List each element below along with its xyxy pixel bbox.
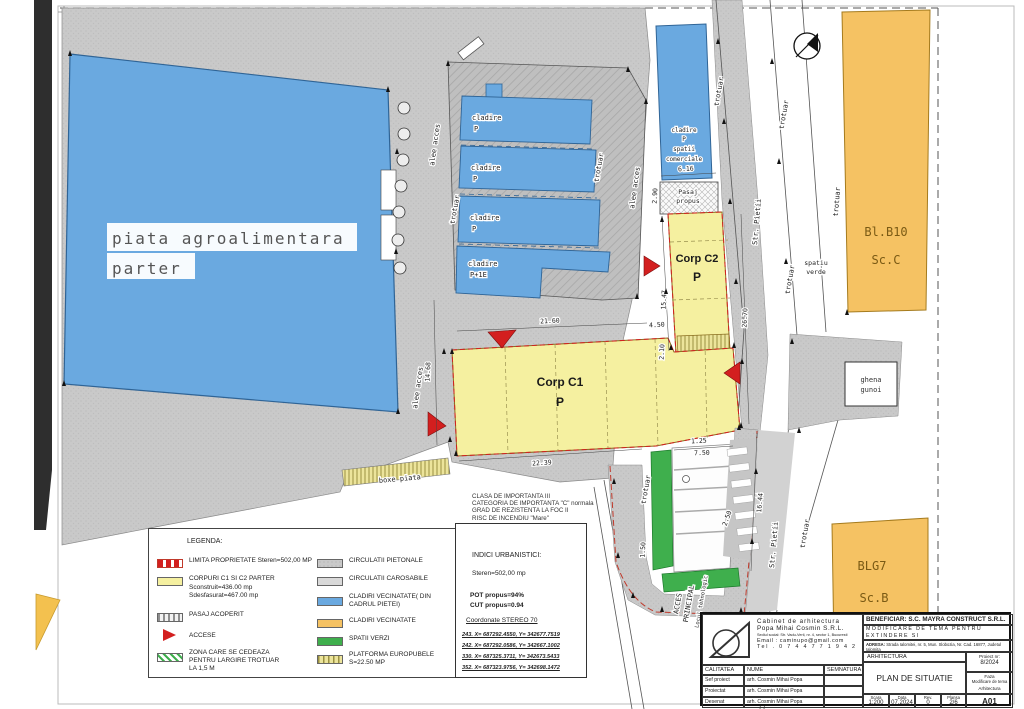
spatiu-verde-1: spatiu: [804, 259, 828, 267]
cluster-2-level: P: [473, 175, 477, 183]
specialty: ARHITECTURA: [863, 652, 966, 662]
dim-1-50: 1.50: [639, 542, 648, 558]
north-arrow-icon: [794, 33, 820, 59]
dim-6-16: 6.16: [678, 165, 694, 174]
cluster-3-level: P: [472, 225, 476, 233]
corp-c2-level: P: [693, 270, 701, 284]
firm-name-2: Popa Mihai Cosmin S.R.L.: [757, 625, 863, 632]
dim-1-25: 1.25: [691, 437, 707, 446]
legend-swatch-europubele: [317, 655, 343, 664]
project-name: MODIFICARE DE TEMA PENTRU EXTINDERE SI M…: [863, 625, 1013, 640]
legend-swatch-accese: [163, 629, 176, 641]
legend-item-europubele-2: S=22.50 MP: [349, 659, 385, 667]
legend-item-corpuri: CORPURI C1 SI C2 PARTER: [189, 575, 275, 583]
address-label: ADRESA:: [866, 642, 885, 647]
row-proiectat-rol: Proiectat: [702, 686, 744, 697]
blg7-sc: Sc.B: [860, 591, 889, 605]
ghena-label-2: gunoi: [860, 386, 881, 394]
spatiu-verde-2: verde: [806, 268, 826, 276]
data-value: 07.2024: [890, 700, 914, 707]
project-name-1: MODIFICARE DE TEMA PENTRU EXTINDERE SI: [866, 626, 1010, 640]
indici-cut: CUT propus=0.94: [470, 602, 524, 609]
sheet-code: A01: [966, 694, 1013, 708]
pasaj-l1: Pasaj: [678, 188, 698, 196]
proiect-nr-cell: Proiect nr: 8/2024: [966, 652, 1013, 672]
cluster-4-label: cladire: [468, 260, 498, 268]
site-plan-sheet: ghena gunoi Bl.B10 Sc.C BLG7 Sc.B piata …: [0, 0, 1024, 709]
legend-item-accese: ACCESE: [189, 632, 216, 640]
legend-item-pietonale: CIRCULATII PIETONALE: [349, 557, 423, 565]
piata-label-2: parter: [112, 259, 182, 278]
title-block: Cabinet de arhitectura Popa Mihai Cosmin…: [700, 612, 1011, 706]
firm-logo: [707, 619, 755, 663]
legend-item-europubele-1: PLATFORMA EUROPUBELE: [349, 651, 434, 659]
legend-item-zona-3: LA 1,5 M: [189, 665, 215, 673]
cluster-2-label: cladire: [471, 164, 501, 172]
comerciale-l4: comerciale: [666, 156, 703, 163]
cluster-4-level: P+1E: [470, 271, 487, 279]
legend-swatch-zona: [157, 653, 183, 662]
legend-item-carosabile: CIRCULATII CAROSABILE: [349, 575, 428, 583]
rev-value: 0: [916, 700, 940, 707]
bl-b10-label: Bl.B10: [864, 225, 907, 239]
note-line: GRAD DE REZISTENTA LA FOC II: [472, 507, 662, 514]
legend-swatch-vecinatate: [317, 619, 343, 628]
legend-item-verzi: SPATII VERZI: [349, 635, 390, 643]
legend-item-limita: LIMITA PROPRIETATE Steren=502,00 MP: [189, 557, 312, 565]
cluster-chimney: [486, 84, 502, 98]
coord-243: 243. X= 687292.4550, Y= 342677.7519: [462, 632, 560, 638]
note-line: CATEGORIA DE IMPORTANTA "C" normala: [472, 500, 662, 507]
faza-cell: Faza Modificare de tema Arhitectura: [966, 672, 1013, 694]
note-line: RISC DE INCENDIU "Mare": [472, 515, 662, 522]
row-proiectat-semnatura: [824, 686, 863, 697]
legend-swatch-verzi: [317, 637, 343, 646]
legend-item-zona-2: PENTRU LARGIRE TROTUAR: [189, 657, 279, 665]
dim-14-68: 14.68: [423, 362, 432, 382]
dim-21-60: 21.60: [540, 316, 560, 325]
dim-2-10: 2.10: [658, 344, 667, 360]
firm-cell: Cabinet de arhitectura Popa Mihai Cosmin…: [702, 614, 863, 665]
corp-c1-level: P: [556, 395, 564, 409]
pasaj-l2: propus: [676, 197, 700, 205]
col-calitatea: CALITATEA: [702, 665, 744, 675]
trotuar-7: trotuar: [799, 518, 812, 548]
dim-7-50: 7.50: [694, 449, 710, 458]
indici-title: INDICI URBANISTICI:: [472, 552, 541, 559]
cluster-1-level: P: [474, 125, 478, 133]
firm-name-1: Cabinet de arhitectura: [757, 618, 863, 625]
row-desenat-rol: Desenat: [702, 697, 744, 708]
coord-330: 330. X= 687325.3711, Y= 342673.5433: [462, 654, 559, 660]
legend-swatch-pietonale: [317, 559, 343, 568]
data-cell: Data 07.2024: [889, 694, 915, 708]
legend-swatch-carosabile: [317, 577, 343, 586]
trotuar-6: trotuar: [832, 187, 843, 217]
comerciale-l1: cladire: [671, 127, 697, 134]
indici-pot: POT propus=94%: [470, 592, 524, 599]
dim-22-39: 22.39: [532, 458, 552, 467]
drawing-title: PLAN DE SITUATIE: [863, 662, 966, 694]
row-desenat-semnatura: [824, 697, 863, 708]
legend-swatch-corpuri: [157, 577, 183, 586]
project-address: ADRESA: Strada Ialomitei, nr. 5, Mun. Sl…: [863, 640, 1013, 652]
dim-26-70: 26.70: [740, 308, 749, 328]
indici-box: INDICI URBANISTICI: Steren=502,00 mp POT…: [455, 523, 587, 678]
plansa-cell: Plansa 2/6: [941, 694, 966, 708]
access-arrow-c2: [644, 256, 660, 276]
legend-item-vecinatate-piata-1: CLADIRI VECINATATE( DIN: [349, 593, 431, 601]
coord-title: Coordonate STEREO 70: [466, 617, 538, 624]
address-value: Strada Ialomitei, nr. 5, Mun. Slobozia, …: [866, 642, 1001, 652]
rev-cell: Rev. 0: [915, 694, 941, 708]
comerciale-l3: spatii: [673, 146, 695, 153]
comerciale-l2: P: [682, 136, 686, 143]
plansa-value: 2/6: [942, 700, 965, 707]
legend-title: LEGENDA:: [187, 538, 222, 546]
legend-item-vecinatate-piata-2: CADRUL PIETEI): [349, 601, 400, 609]
trotuar-4: trotuar: [778, 99, 791, 129]
scara-value: 1:200: [864, 700, 888, 707]
coord-352: 352. X= 687323.9756, Y= 342698.1472: [462, 665, 560, 671]
faza-spec: Arhitectura: [967, 686, 1012, 692]
note-line: CLASA DE IMPORTANTA III: [472, 493, 662, 500]
row-desenat-nume: arh. Cosmin Mihai Popa: [744, 697, 824, 708]
piata-stall-1: [381, 170, 396, 210]
corp-c2-label: Corp C2: [676, 253, 719, 265]
beneficiar: BENEFICIAR: S.C. MAYRA CONSTRUCT S.R.L.: [863, 614, 1013, 625]
indici-steren: Steren=502,00 mp: [472, 570, 526, 577]
row-sef-semnatura: [824, 675, 863, 686]
legend-swatch-vecinatate-piata: [317, 597, 343, 606]
row-proiectat-nume: arh. Cosmin Mihai Popa: [744, 686, 824, 697]
legend-item-zona-1: ZONA CARE SE CEDEAZA: [189, 649, 270, 657]
coord-242: 242. X= 687292.0586, Y= 342667.1002: [462, 643, 560, 649]
col-nume: NUME: [744, 665, 824, 675]
cluster-3-label: cladire: [470, 214, 500, 222]
dim-4-50: 4.50: [649, 321, 665, 330]
corp-c1-label: Corp C1: [537, 375, 584, 389]
bl-b10-sc: Sc.C: [872, 253, 901, 267]
trotuar-5: trotuar: [784, 264, 797, 294]
row-sef-nume: arh. Cosmin Mihai Popa: [744, 675, 824, 686]
ghena-gunoi-box: [845, 362, 897, 406]
blg7-label: BLG7: [858, 559, 887, 573]
dim-16-44: 16.44: [755, 493, 765, 513]
legend-swatch-limita: [157, 559, 183, 568]
legend-item-corpuri-sub1: Sconstruit=436.00 mp: [189, 584, 252, 592]
scara-cell: Scara 1:200: [863, 694, 889, 708]
dim-2-90: 2.90: [651, 188, 660, 204]
legend-item-pasaj: PASAJ ACOPERIT: [189, 611, 244, 619]
ghena-label-1: ghena: [860, 376, 881, 384]
legend-item-corpuri-sub2: Sdesfasurat=467.00 mp: [189, 592, 258, 600]
row-sef-rol: Sef proiect: [702, 675, 744, 686]
col-semnatura: SEMNATURA: [824, 665, 863, 675]
importance-notes: CLASA DE IMPORTANTA III CATEGORIA DE IMP…: [472, 493, 662, 522]
legend-item-vecinatate: CLADIRI VECINATATE: [349, 617, 416, 625]
parking-symbol: [683, 476, 690, 483]
firm-tel: Tel . 0 7 4 4 7 7 1 9 4 2: [757, 644, 863, 650]
scan-black-strip: [34, 0, 52, 530]
faza-value: Modificare de tema: [967, 680, 1012, 685]
legend-swatch-pasaj: [157, 613, 183, 622]
legend-box: LEGENDA: LIMITA PROPRIETATE Steren=502,0…: [148, 528, 458, 678]
firm-address: Sediul social: Str. Vadu-Verii, nr. 4, s…: [757, 633, 863, 637]
cluster-1-label: cladire: [472, 114, 502, 122]
piata-label-1: piata agroalimentara: [112, 229, 345, 248]
scan-yellow-triangle: [36, 594, 60, 650]
proiect-nr-value: 8/2024: [967, 660, 1012, 667]
